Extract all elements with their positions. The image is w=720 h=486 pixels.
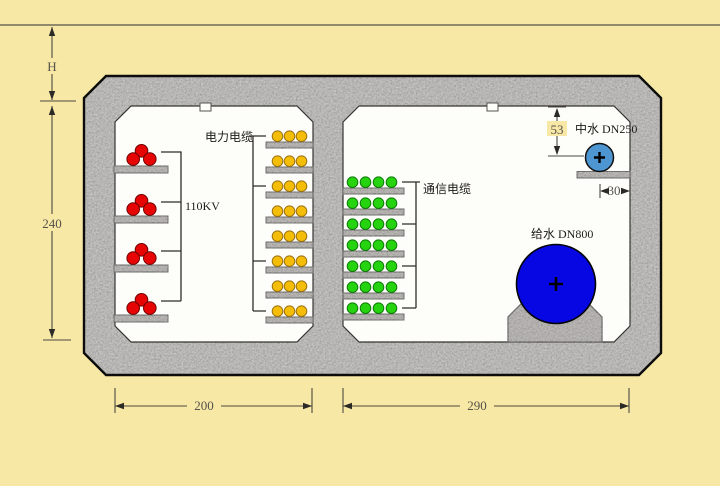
ceiling-notch-left [200, 103, 211, 111]
telecom-cable [360, 261, 371, 272]
power-cable [272, 281, 283, 292]
telecom-cable [347, 177, 358, 188]
telecom-cable [386, 303, 397, 314]
power-cable [296, 181, 307, 192]
water-supply-label: 给水 DN800 [531, 227, 593, 241]
hv-cable [127, 153, 140, 166]
power-cables-label: 电力电缆 [205, 130, 253, 144]
telecom-cable [373, 219, 384, 230]
telecom-cable [360, 177, 371, 188]
power-cable [272, 206, 283, 217]
power-cable [284, 306, 295, 317]
telecom-cable [386, 261, 397, 272]
reclaimed-water-label: 中水 DN250 [575, 121, 637, 136]
telecom-cable [373, 282, 384, 293]
power-cable [296, 306, 307, 317]
telecom-cable [373, 303, 384, 314]
dim-reclaimed-top-offset-label: 53 [551, 122, 564, 137]
power-cable [272, 231, 283, 242]
telecom-cable [347, 240, 358, 251]
hv-cable [144, 203, 157, 216]
telecom-cable [386, 198, 397, 209]
telecom-cable [347, 198, 358, 209]
telecom-cable [373, 177, 384, 188]
telecom-cable [373, 240, 384, 251]
telecom-cable [386, 219, 397, 230]
hv-cable [127, 252, 140, 265]
telecom-cable [360, 282, 371, 293]
telecom-cable [360, 219, 371, 230]
power-cable [284, 156, 295, 167]
diagram-stage: 110KV 电力电缆 通信电缆 中水 DN250 给水 DN800 H 240 [0, 0, 720, 486]
power-cable [272, 306, 283, 317]
power-cable [284, 131, 295, 142]
hv-cable [144, 302, 157, 315]
power-cable [296, 131, 307, 142]
dim-cover-depth-label: H [47, 59, 56, 74]
telecom-cable [386, 240, 397, 251]
ceiling-notch-right [487, 103, 498, 111]
dim-left-chamber-width-label: 200 [194, 398, 214, 413]
telecom-cable [347, 219, 358, 230]
telecom-cables-label: 通信电缆 [423, 182, 471, 196]
telecom-cable [386, 177, 397, 188]
telecom-cable [360, 240, 371, 251]
telecom-cable [360, 198, 371, 209]
power-cable [272, 131, 283, 142]
power-cable [272, 181, 283, 192]
power-cable [296, 281, 307, 292]
power-cable [284, 256, 295, 267]
telecom-cable [386, 282, 397, 293]
telecom-cable [373, 198, 384, 209]
hv-cable [144, 252, 157, 265]
power-cable [272, 256, 283, 267]
dim-reclaimed-side-offset-label: 30 [608, 183, 621, 198]
power-cable [284, 231, 295, 242]
power-cable [296, 156, 307, 167]
telecom-cable [373, 261, 384, 272]
hv-cable [127, 302, 140, 315]
power-cable [272, 156, 283, 167]
power-cable [296, 231, 307, 242]
telecom-cable [347, 303, 358, 314]
hv-cable [144, 153, 157, 166]
power-cable [284, 281, 295, 292]
telecom-cable [347, 261, 358, 272]
power-cable [284, 206, 295, 217]
telecom-cable [360, 303, 371, 314]
power-cable [296, 206, 307, 217]
power-cable [284, 181, 295, 192]
telecom-cable [347, 282, 358, 293]
power-cable [296, 256, 307, 267]
dim-right-chamber-width-label: 290 [467, 398, 487, 413]
dim-interior-height-label: 240 [42, 216, 62, 231]
hv-cable [127, 203, 140, 216]
utility-tunnel-cross-section-drawing: 110KV 电力电缆 通信电缆 中水 DN250 给水 DN800 H 240 [0, 0, 720, 486]
hv-cables-label: 110KV [185, 199, 220, 213]
